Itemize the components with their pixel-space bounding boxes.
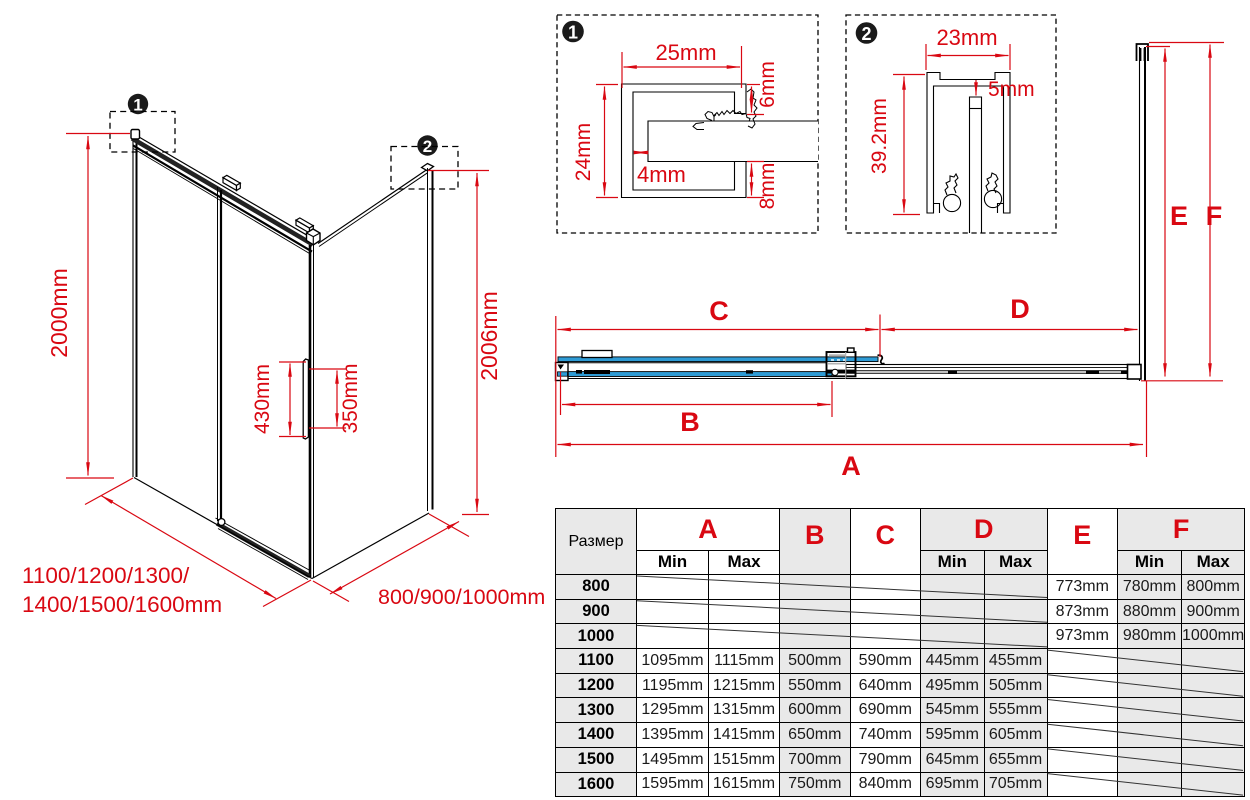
- svg-text:C: C: [709, 296, 729, 326]
- svg-text:1100/1200/1300/: 1100/1200/1300/: [22, 563, 190, 588]
- svg-text:23mm: 23mm: [936, 25, 997, 50]
- svg-text:6mm: 6mm: [756, 61, 779, 108]
- svg-text:2000mm: 2000mm: [46, 268, 72, 357]
- svg-text:25mm: 25mm: [655, 40, 716, 65]
- svg-text:1: 1: [568, 23, 578, 43]
- svg-text:8mm: 8mm: [756, 163, 779, 210]
- svg-text:800/900/1000mm: 800/900/1000mm: [378, 585, 545, 609]
- svg-text:E: E: [1170, 201, 1188, 231]
- svg-text:1400/1500/1600mm: 1400/1500/1600mm: [22, 592, 222, 617]
- svg-text:5mm: 5mm: [988, 78, 1035, 101]
- svg-text:430mm: 430mm: [251, 364, 274, 434]
- svg-text:F: F: [1206, 201, 1223, 231]
- svg-text:B: B: [680, 407, 700, 437]
- svg-text:A: A: [841, 451, 861, 481]
- svg-text:24mm: 24mm: [572, 123, 595, 181]
- svg-text:2: 2: [861, 24, 871, 44]
- svg-text:2006mm: 2006mm: [476, 291, 502, 380]
- svg-text:D: D: [1010, 294, 1030, 324]
- svg-text:4mm: 4mm: [637, 162, 686, 187]
- svg-text:350mm: 350mm: [339, 363, 362, 433]
- svg-text:39.2mm: 39.2mm: [868, 98, 891, 174]
